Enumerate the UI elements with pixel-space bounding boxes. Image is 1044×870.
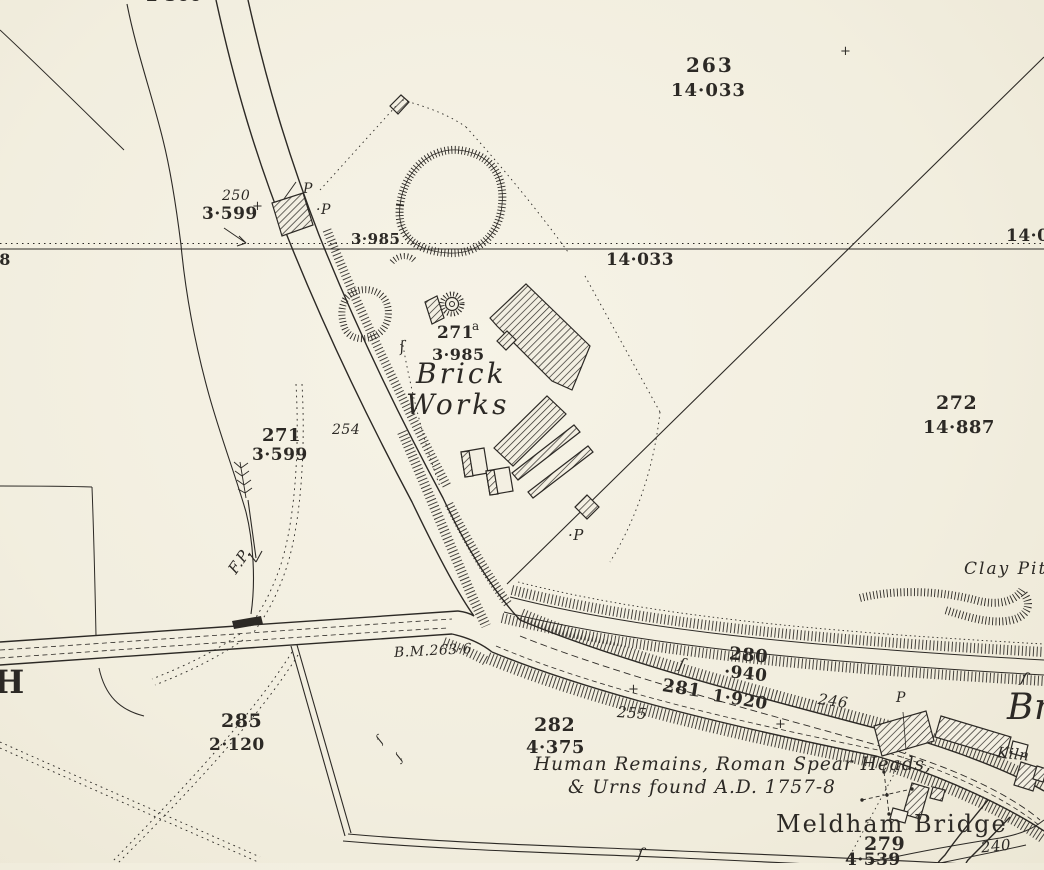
pump-label: P [303,182,313,196]
parcel-suffix: a [472,320,480,332]
pump-label: ·P [316,203,331,217]
road-number: 246 [817,692,849,711]
parcel-area: 3·599 [252,447,308,464]
parcel-area: 14·887 [923,419,995,437]
benchmark-label: B.M.263·6 [394,642,473,660]
footbridge [232,616,263,629]
building [425,296,444,324]
pump-label: P [896,691,906,705]
boundary-value: 14·033 [606,252,674,269]
brace-symbol: ſ [372,732,388,747]
parcel-number: 271 [437,325,474,342]
kiln-circle-symbol [442,294,462,314]
parcel-area: ·940 [723,664,768,685]
east-clay-pit [860,590,1022,603]
track-north-edge [510,597,1044,660]
edge-value-partial: 2·366 [146,0,202,5]
pump-label: ·P [568,528,584,543]
building [272,193,313,236]
boundary-value-partial: 14·0 [1006,228,1044,245]
place-name-brick-works: Brick [416,360,507,388]
parcel-number: 263 [686,55,734,75]
place-name-partial: H [0,666,25,698]
road-number: 255 [617,705,648,722]
place-name-brick-works: Works [406,391,509,419]
plus-mark: + [840,44,851,59]
antiquity-note: Human Remains, Roman Spear Heads, [534,756,932,775]
road-northwest-east-edge [248,0,520,620]
plus-mark: + [775,717,786,732]
parcel-number: 271 [262,427,301,445]
parcel-number: 272 [936,394,977,413]
road-number: 254 [332,423,360,437]
parcel-area-partial: 4·539 [845,852,901,869]
building [575,495,599,519]
clay-pit-label: Clay Pit [964,561,1044,578]
parcel-number: 282 [534,716,575,735]
parcel-area: 2·120 [209,737,265,754]
map-linework: + + + + ſ ſ ſ ſ ſ ſ [0,0,1044,863]
stream [127,4,263,629]
edge-value-partial: 268 [0,252,11,268]
brace-symbol: ſ [635,844,646,863]
antiquity-note: & Urns found A.D. 1757-8 [568,779,836,798]
dotted-boundaries [320,100,906,863]
parcel-area: 3·599 [202,206,258,223]
buildings [272,95,1044,823]
kiln-label: Kiln [996,745,1030,763]
os-historical-map: + + + + ſ ſ ſ ſ ſ ſ 263 14·033 14·033 14… [0,0,1044,863]
brace-symbol: ſ [391,751,407,766]
place-name-partial: Br [1007,690,1044,726]
parcel-area: 14·033 [671,82,746,100]
road-number: 240 [980,837,1012,855]
parcel-number: 285 [221,712,262,731]
road-number: 250 [222,189,250,203]
reeds-symbol [234,462,252,498]
building [390,95,409,114]
building [874,711,934,756]
spot-level: 3·985 [351,232,400,247]
brace-symbol: ſ [397,337,408,356]
plus-mark: + [628,682,639,697]
building [930,787,945,801]
